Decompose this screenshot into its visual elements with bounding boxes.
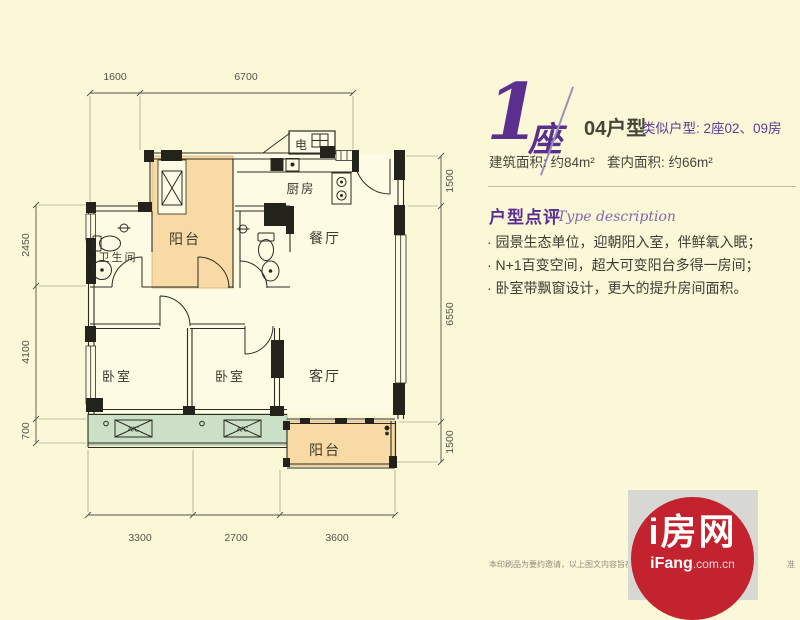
dim-bottom-1: 3300 <box>128 532 152 544</box>
dim-right-3: 1500 <box>444 430 456 454</box>
balcony-bottom-area <box>287 421 395 466</box>
review-bullet: · 园景生态单位，迎朝阳入室，伴鲜氧入眠； <box>487 231 799 254</box>
dim-left-2: 4100 <box>20 340 32 364</box>
label-balcony-top: 阳台 <box>169 231 201 247</box>
logo-brand: iFang <box>650 555 693 572</box>
label-living: 客厅 <box>309 368 341 384</box>
dim-left-3: 700 <box>20 422 32 440</box>
ifang-logo: i房网 iFang.com.cn <box>631 497 754 620</box>
floorplan: 电 厨房 阳台 卫生间 餐厅 卧室 卧室 客厅 阳台 A/C A/C 1600 … <box>0 0 470 600</box>
similar-units: 类似户型: 2座02、09房 <box>642 117 782 137</box>
logo-subtitle: iFang.com.cn <box>631 555 754 573</box>
header-divider <box>488 186 796 187</box>
label-ac-mid: A/C <box>237 427 249 434</box>
dim-bottom-3: 3600 <box>325 532 349 544</box>
fill-mid-band <box>88 205 403 330</box>
bay-window-strip <box>88 414 287 445</box>
review-bullet: · 卧室带飘窗设计，更大的提升房间面积。 <box>487 277 799 300</box>
label-kitchen: 厨房 <box>286 181 315 196</box>
review-bullets: · 园景生态单位，迎朝阳入室，伴鲜氧入眠； · N+1百变空间，超大可变阳台多得… <box>487 231 799 300</box>
balcony-drain <box>385 426 389 430</box>
built-area: 建筑面积: 约84m² <box>489 151 595 171</box>
inner-area: 套内面积: 约66m² <box>607 151 713 171</box>
label-bathroom: 卫生间 <box>99 250 138 264</box>
floorplan-fills <box>88 131 403 466</box>
logo-domain: .com.cn <box>693 557 735 571</box>
review-bullet: · N+1百变空间，超大可变阳台多得一房间； <box>487 254 799 277</box>
kitchen-sink <box>271 159 283 171</box>
label-dining: 餐厅 <box>309 230 341 246</box>
logo-title: i房网 <box>631 512 754 552</box>
dim-left-1: 2450 <box>20 233 32 257</box>
label-bedroom-mid: 卧室 <box>215 369 245 384</box>
flyer-page: { "header": { "building_number": "1", "b… <box>0 0 800 600</box>
dim-top-2: 6700 <box>234 71 258 83</box>
dim-right-1: 1500 <box>444 169 456 193</box>
review-title: 户型点评 <box>489 203 561 228</box>
unit-type: 04户型 <box>584 112 646 141</box>
dim-right-2: 6550 <box>444 302 456 326</box>
dim-top-1: 1600 <box>103 71 127 83</box>
review-subtitle: Type description <box>557 209 676 225</box>
label-bedroom-left: 卧室 <box>102 369 132 384</box>
disclaimer-text-fragment: 准 <box>787 559 795 570</box>
label-electric: 电 <box>295 138 309 152</box>
label-balcony-bottom: 阳台 <box>309 442 341 458</box>
dim-bottom-2: 2700 <box>224 532 248 544</box>
label-ac-left: A/C <box>128 427 140 434</box>
